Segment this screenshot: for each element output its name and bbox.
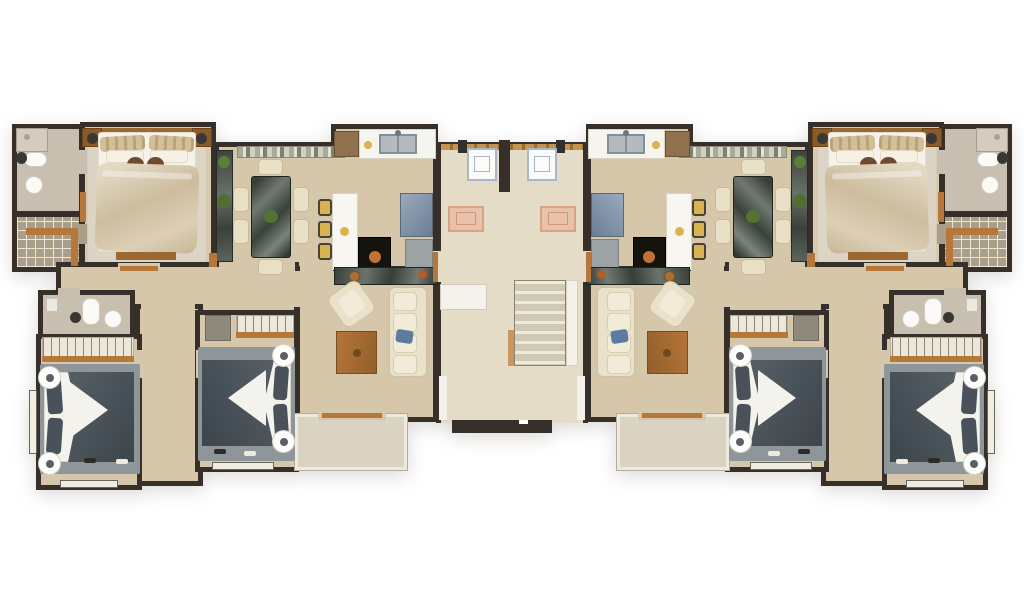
table-lamp-left xyxy=(87,133,98,144)
window-planter-strip xyxy=(237,146,345,158)
table-centerpiece-plant xyxy=(264,210,278,223)
floor-pouf-3a-dot xyxy=(46,374,54,382)
dining-chair-right-1-mirrored xyxy=(715,187,731,212)
sofa-cushion-1-mirrored xyxy=(607,292,631,311)
shower-drain-mirrored xyxy=(994,134,1000,140)
door-bathroom2 xyxy=(58,288,80,299)
wall-pier-right xyxy=(556,140,565,153)
floor-pouf-2b-dot-mirrored xyxy=(736,438,744,446)
slippers-2b xyxy=(244,451,256,456)
wall-pier-left xyxy=(458,140,467,153)
entry-console-top xyxy=(456,212,476,225)
window-bedroom3-bottom-mirrored xyxy=(906,480,964,488)
wardrobe-rail-bedroom2-mirrored xyxy=(730,332,788,338)
hall-storage-cabinet xyxy=(440,284,487,310)
dressing-hall-floor xyxy=(135,304,203,486)
sofa-cushion-1 xyxy=(393,292,417,311)
dining-chair-right-1 xyxy=(293,187,309,212)
table-lamp-left-mirrored xyxy=(926,133,937,144)
slippers-3b-mirrored xyxy=(896,459,908,464)
sideboard-plant-1-mirrored xyxy=(794,156,806,168)
coffee-table-deco xyxy=(353,349,361,357)
closet-door-jamb xyxy=(80,192,86,222)
bar-stool-1 xyxy=(318,199,332,216)
hall-door-leaf xyxy=(439,376,447,420)
sideboard-plant-1 xyxy=(218,156,230,168)
bath2-hamper xyxy=(70,312,81,323)
floor-plan xyxy=(0,0,1024,614)
closet-shelf-side-mirrored xyxy=(946,230,953,266)
shower-drain xyxy=(24,134,30,140)
dining-chair-left-2 xyxy=(233,219,249,244)
bath2-shelf xyxy=(46,298,58,312)
threshold-unit-entry xyxy=(433,252,438,282)
bar-stool-3 xyxy=(318,243,332,260)
window-bedroom2-bottom-mirrored xyxy=(750,462,812,470)
window-bedroom3-side xyxy=(29,390,37,454)
threshold-unit-entry-mirrored xyxy=(586,252,591,282)
bed-end-bench-mirrored xyxy=(848,252,908,260)
island-bowl-deco-mirrored xyxy=(675,227,684,236)
opening-dining-corridor xyxy=(219,262,295,276)
balcony-floor xyxy=(295,414,407,470)
bed2-pillow-1 xyxy=(273,366,289,401)
window-planter-strip-mirrored xyxy=(679,146,787,158)
table-lamp-right xyxy=(196,133,207,144)
master-basin-mirrored xyxy=(981,176,999,194)
opening-corridor-living xyxy=(293,271,305,307)
table-lamp-right-mirrored xyxy=(817,133,828,144)
toilet-2-mirrored xyxy=(924,298,942,325)
slippers-2b-mirrored xyxy=(768,451,780,456)
wardrobe-rail-bedroom2 xyxy=(236,332,294,338)
dining-chair-left-1 xyxy=(233,187,249,212)
bar-stool-3-mirrored xyxy=(692,243,706,260)
bed2-pillow-1-mirrored xyxy=(735,366,751,401)
bed3-pillow-2-mirrored xyxy=(961,418,978,455)
sink-divider-mirrored xyxy=(625,136,627,152)
deco-vase xyxy=(418,270,427,279)
washing-machine-right-drum xyxy=(534,156,550,172)
refrigerator-mirrored xyxy=(591,193,624,237)
toilet-2 xyxy=(82,298,100,325)
door-master-closet xyxy=(78,224,87,244)
entrance-door-gap xyxy=(519,420,528,424)
corridor-door-jamb-mirrored xyxy=(807,253,815,267)
dining-chair-left-1-mirrored xyxy=(775,187,791,212)
wall-pier-center xyxy=(499,140,510,192)
dining-chair-top xyxy=(258,159,283,175)
corridor-door-jamb xyxy=(209,253,217,267)
door-master-bath-mirrored xyxy=(937,150,946,174)
table-centerpiece-plant-mirrored xyxy=(746,210,760,223)
dressing-hall-floor-mirrored xyxy=(821,304,889,486)
pantry-cabinet xyxy=(334,131,359,157)
door-bathroom2-mirrored xyxy=(944,288,966,299)
sofa-throw-blue xyxy=(395,329,414,344)
opening-corridor-living-mirrored xyxy=(719,271,731,307)
dresser-cube-bedroom2-mirrored xyxy=(793,315,819,341)
dining-chair-top-mirrored xyxy=(741,159,766,175)
threshold-master-door xyxy=(120,266,158,271)
dishwasher xyxy=(405,239,433,268)
floor-pouf-2b-dot xyxy=(280,438,288,446)
opening-corridor-dressing xyxy=(141,302,195,313)
dresser-cube-bedroom2 xyxy=(205,315,231,341)
entry-console-top-mirrored xyxy=(548,212,568,225)
coffee-table-deco-mirrored xyxy=(663,349,671,357)
dining-chair-right-2 xyxy=(293,219,309,244)
floor-pouf-2a-dot xyxy=(280,352,288,360)
master-toilet xyxy=(24,152,47,167)
deco-vase-mirrored xyxy=(597,270,606,279)
faucet-mirrored xyxy=(623,130,629,136)
cooking-pot xyxy=(369,251,381,263)
sofa-cushion-4 xyxy=(393,355,417,374)
stair-landing-strip xyxy=(566,280,578,366)
window-bedroom3-bottom xyxy=(60,480,118,488)
sink-divider xyxy=(397,136,399,152)
sideboard-plant-2 xyxy=(218,194,230,208)
bath2-shelf-mirrored xyxy=(966,298,978,312)
threshold-balcony-door xyxy=(322,413,382,418)
basin-2-mirrored xyxy=(902,310,920,328)
counter-bowl-deco xyxy=(364,141,372,149)
opening-corridor-dressing-mirrored xyxy=(829,302,883,313)
threshold-master-door-mirrored xyxy=(866,266,904,271)
bar-stool-2 xyxy=(318,221,332,238)
master-toilet-cistern-mirrored xyxy=(997,152,1008,164)
threshold-balcony-door-mirrored xyxy=(642,413,702,418)
master-toilet-cistern xyxy=(16,152,27,164)
closet-shelf-side xyxy=(71,230,78,266)
pantry-cabinet-mirrored xyxy=(665,131,690,157)
dining-chair-bottom-mirrored xyxy=(741,259,766,275)
slippers-3b xyxy=(116,459,128,464)
faucet xyxy=(395,130,401,136)
wardrobe-rail-bedroom3-mirrored xyxy=(890,356,982,362)
washing-machine-left-drum xyxy=(474,156,490,172)
bath2-hamper-mirrored xyxy=(943,312,954,323)
window-bedroom3-side-mirrored xyxy=(987,390,995,454)
slippers-2a xyxy=(214,449,226,454)
sofa-throw-blue-mirrored xyxy=(610,329,629,344)
sideboard-plant-2-mirrored xyxy=(794,194,806,208)
door-master-closet-mirrored xyxy=(937,224,946,244)
slippers-3a xyxy=(84,458,96,463)
floor-pouf-3b-dot xyxy=(46,460,54,468)
dining-chair-bottom xyxy=(258,259,283,275)
shower-tray xyxy=(16,128,48,152)
cooking-pot-mirrored xyxy=(643,251,655,263)
master-basin xyxy=(25,176,43,194)
bar-stool-1-mirrored xyxy=(692,199,706,216)
floor-pouf-2a-dot-mirrored xyxy=(736,352,744,360)
door-master-bath xyxy=(78,150,87,174)
floor-plan-screenshot xyxy=(0,0,1024,614)
closet-door-jamb-mirrored xyxy=(938,192,944,222)
bar-stool-2-mirrored xyxy=(692,221,706,238)
island-bowl-deco xyxy=(340,227,349,236)
balcony-floor-mirrored xyxy=(617,414,729,470)
sofa-cushion-4-mirrored xyxy=(607,355,631,374)
shower-tray-mirrored xyxy=(976,128,1008,152)
closet-shelf-top-mirrored xyxy=(946,228,998,235)
dining-chair-left-2-mirrored xyxy=(775,219,791,244)
dining-chair-right-2-mirrored xyxy=(715,219,731,244)
basin-2 xyxy=(104,310,122,328)
slippers-2a-mirrored xyxy=(798,449,810,454)
counter-bowl-deco-mirrored xyxy=(652,141,660,149)
dishwasher-mirrored xyxy=(591,239,619,268)
staircase xyxy=(514,280,566,366)
slippers-3a-mirrored xyxy=(928,458,940,463)
stair-handrail xyxy=(508,330,514,366)
floor-pouf-3b-dot-mirrored xyxy=(970,460,978,468)
entrance-wall xyxy=(452,420,552,433)
refrigerator xyxy=(400,193,433,237)
window-bedroom2-bottom xyxy=(212,462,274,470)
wardrobe-rail-bedroom3 xyxy=(42,356,134,362)
bed3-pillow-2 xyxy=(46,418,63,455)
hall-door-leaf-mirrored xyxy=(577,376,585,420)
bed-end-bench xyxy=(116,252,176,260)
floor-pouf-3a-dot-mirrored xyxy=(970,374,978,382)
